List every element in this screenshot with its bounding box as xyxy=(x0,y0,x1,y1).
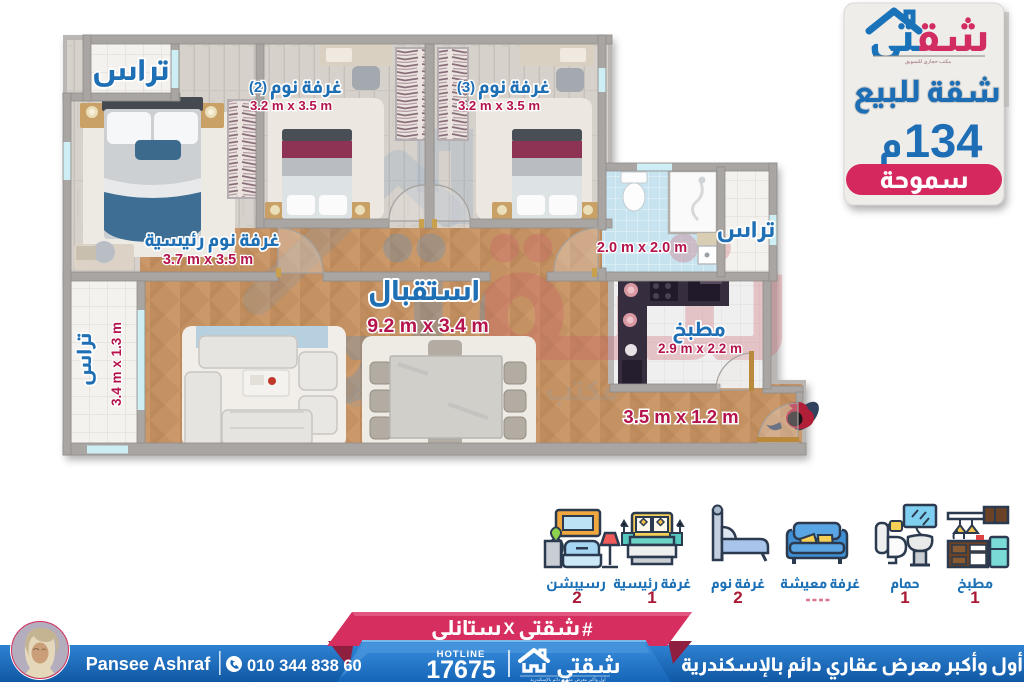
svg-text:1: 1 xyxy=(970,588,979,607)
svg-text:010 344 838 60: 010 344 838 60 xyxy=(247,657,362,675)
svg-text:1: 1 xyxy=(900,588,909,607)
svg-text:Pansee Ashraf: Pansee Ashraf xyxy=(86,654,211,674)
svg-text:#: # xyxy=(582,620,593,641)
svg-text:134: 134 xyxy=(904,114,982,167)
svg-text:2: 2 xyxy=(733,588,742,607)
svg-text:(3): (3) xyxy=(457,79,475,96)
svg-text:1: 1 xyxy=(647,588,656,607)
svg-text:2.0 m x 2.0 m: 2.0 m x 2.0 m xyxy=(597,240,687,256)
svg-text:3.7 m x 3.5 m: 3.7 m x 3.5 m xyxy=(163,252,253,268)
svg-text:3.5 m x 1.2 m: 3.5 m x 1.2 m xyxy=(623,406,738,427)
svg-text:أول وأكبر معرض عقاري دائم بالإ: أول وأكبر معرض عقاري دائم بالإسكندرية xyxy=(530,675,606,682)
svg-text:9.2 m x 3.4 m: 9.2 m x 3.4 m xyxy=(367,315,488,337)
svg-text:مكتب حجازي للتسويق: مكتب حجازي للتسويق xyxy=(905,59,951,65)
svg-text:3.2 m x 3.5 m: 3.2 m x 3.5 m xyxy=(458,98,540,113)
svg-text:17675: 17675 xyxy=(426,656,496,682)
svg-text:X: X xyxy=(503,619,515,638)
svg-text:(2): (2) xyxy=(249,79,267,96)
svg-text:3.2 m x 3.5 m: 3.2 m x 3.5 m xyxy=(250,98,332,113)
svg-text:2.9 m x 2.2 m: 2.9 m x 2.2 m xyxy=(658,341,742,356)
svg-text:3.4 m x 1.3 m: 3.4 m x 1.3 m xyxy=(109,322,124,406)
svg-text:2: 2 xyxy=(572,588,581,607)
